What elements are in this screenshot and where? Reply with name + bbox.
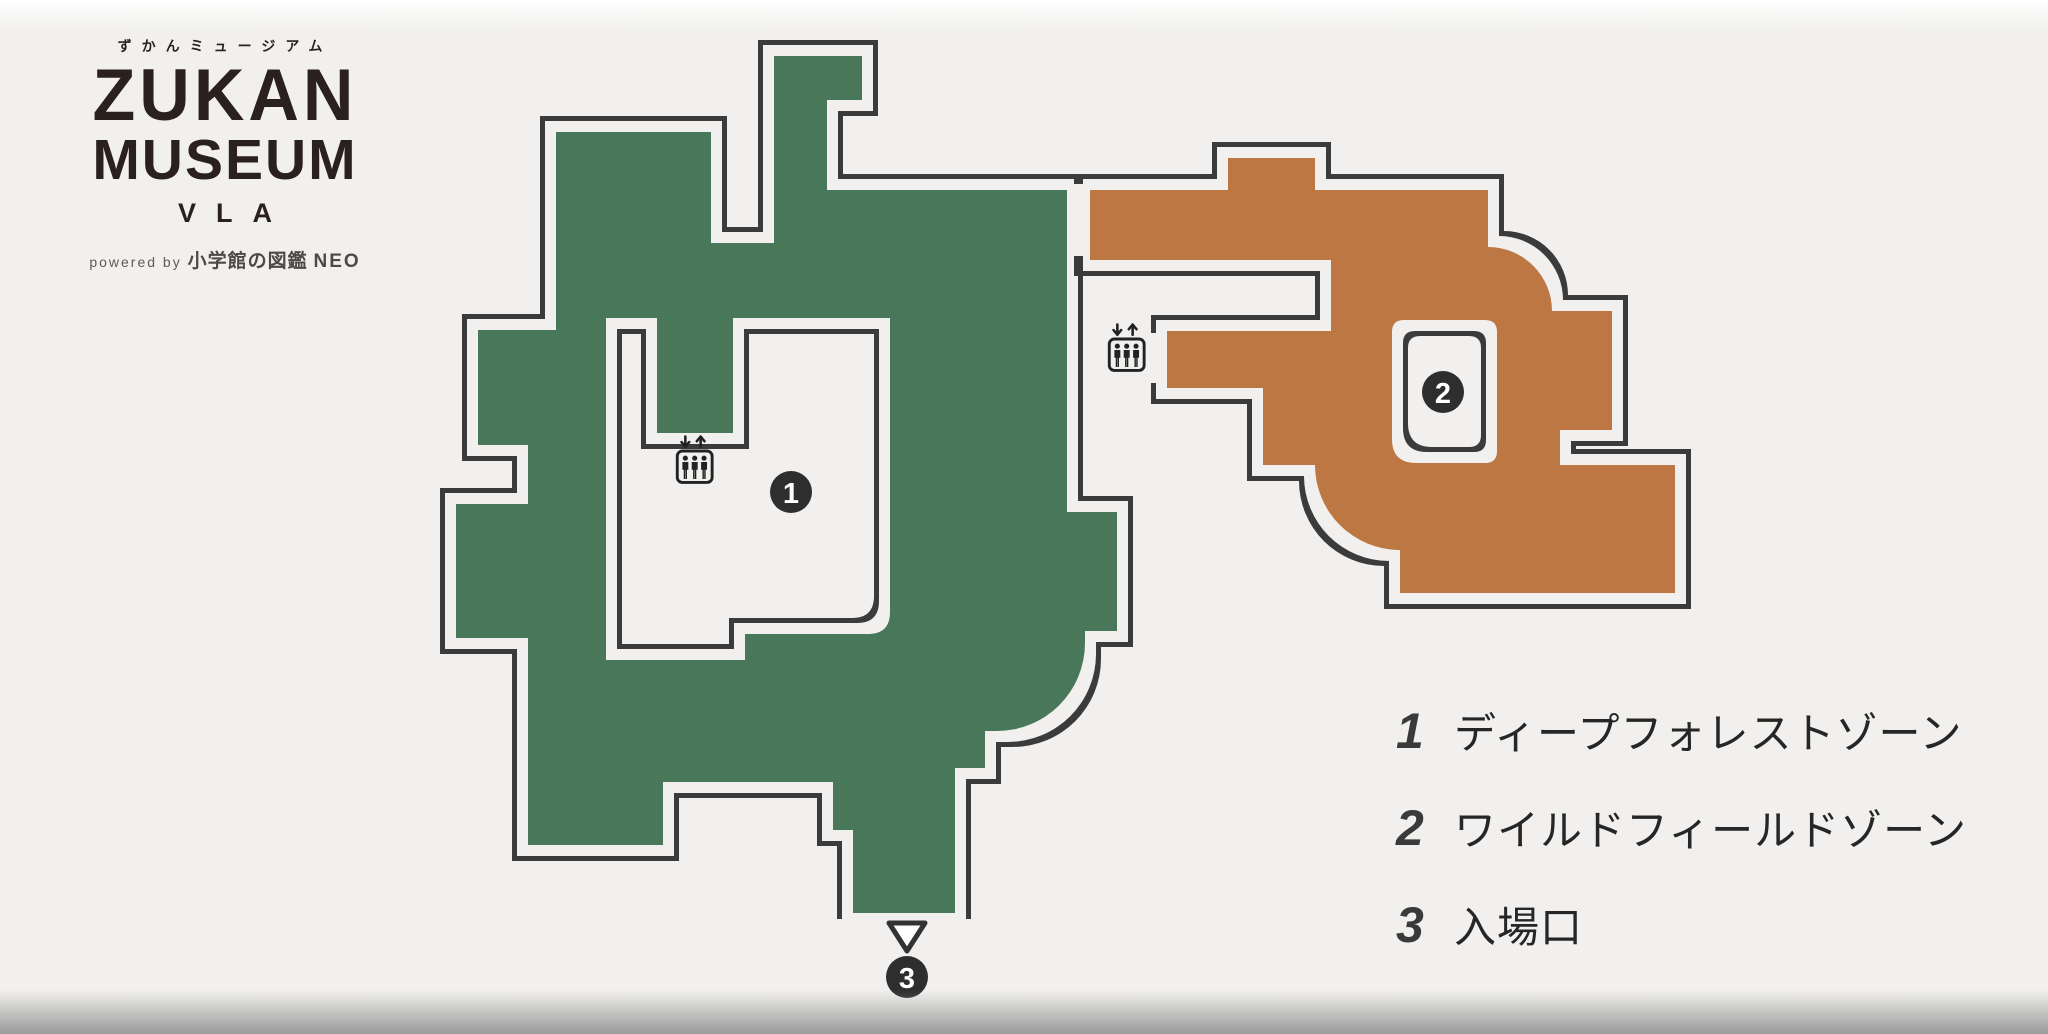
legend-label: 入場口 xyxy=(1442,894,1583,955)
svg-text:2: 2 xyxy=(1435,378,1451,410)
legend-item-entrance: 3 入場口 xyxy=(1396,894,1967,955)
museum-logo: ずかんミュージアム ZUKAN MUSEUM VLA powered by 小学… xyxy=(70,36,380,273)
zone-marker-1: 1 xyxy=(770,471,812,513)
legend-item-wild-field: 2 ワイルドフィールドゾーン xyxy=(1396,797,1967,858)
logo-furigana: ずかんミュージアム xyxy=(70,36,380,56)
svg-text:1: 1 xyxy=(783,478,799,510)
elevator-icon xyxy=(1109,325,1144,371)
legend-item-deep-forest: 1 ディープフォレストゾーン xyxy=(1396,700,1967,761)
legend-number: 2 xyxy=(1396,799,1442,857)
logo-title-zukan: ZUKAN xyxy=(70,58,380,132)
legend-label: ディープフォレストゾーン xyxy=(1442,700,1962,761)
svg-text:3: 3 xyxy=(899,963,915,995)
logo-powered-by: powered by 小学館の図鑑 NEO xyxy=(70,246,380,273)
entrance-triangle-icon xyxy=(889,923,925,951)
zone-junction-patch xyxy=(1070,184,1088,256)
entrance-marker-3: 3 xyxy=(886,956,928,998)
zukan-museum-floor-map-page: { "colors": { "background": "#f1f0ee", "… xyxy=(0,0,2048,1034)
zone-wild-field xyxy=(1090,158,1675,593)
zone-marker-2: 2 xyxy=(1422,371,1464,413)
logo-title-vla: VLA xyxy=(70,196,380,231)
legend: 1 ディープフォレストゾーン 2 ワイルドフィールドゾーン 3 入場口 xyxy=(1396,700,1967,991)
legend-label: ワイルドフィールドゾーン xyxy=(1442,797,1967,858)
legend-number: 3 xyxy=(1396,896,1442,954)
elevator-icon xyxy=(677,437,712,483)
logo-title-museum: MUSEUM xyxy=(70,130,380,190)
legend-number: 1 xyxy=(1396,702,1442,760)
corridor-opening-patch xyxy=(1148,333,1162,383)
